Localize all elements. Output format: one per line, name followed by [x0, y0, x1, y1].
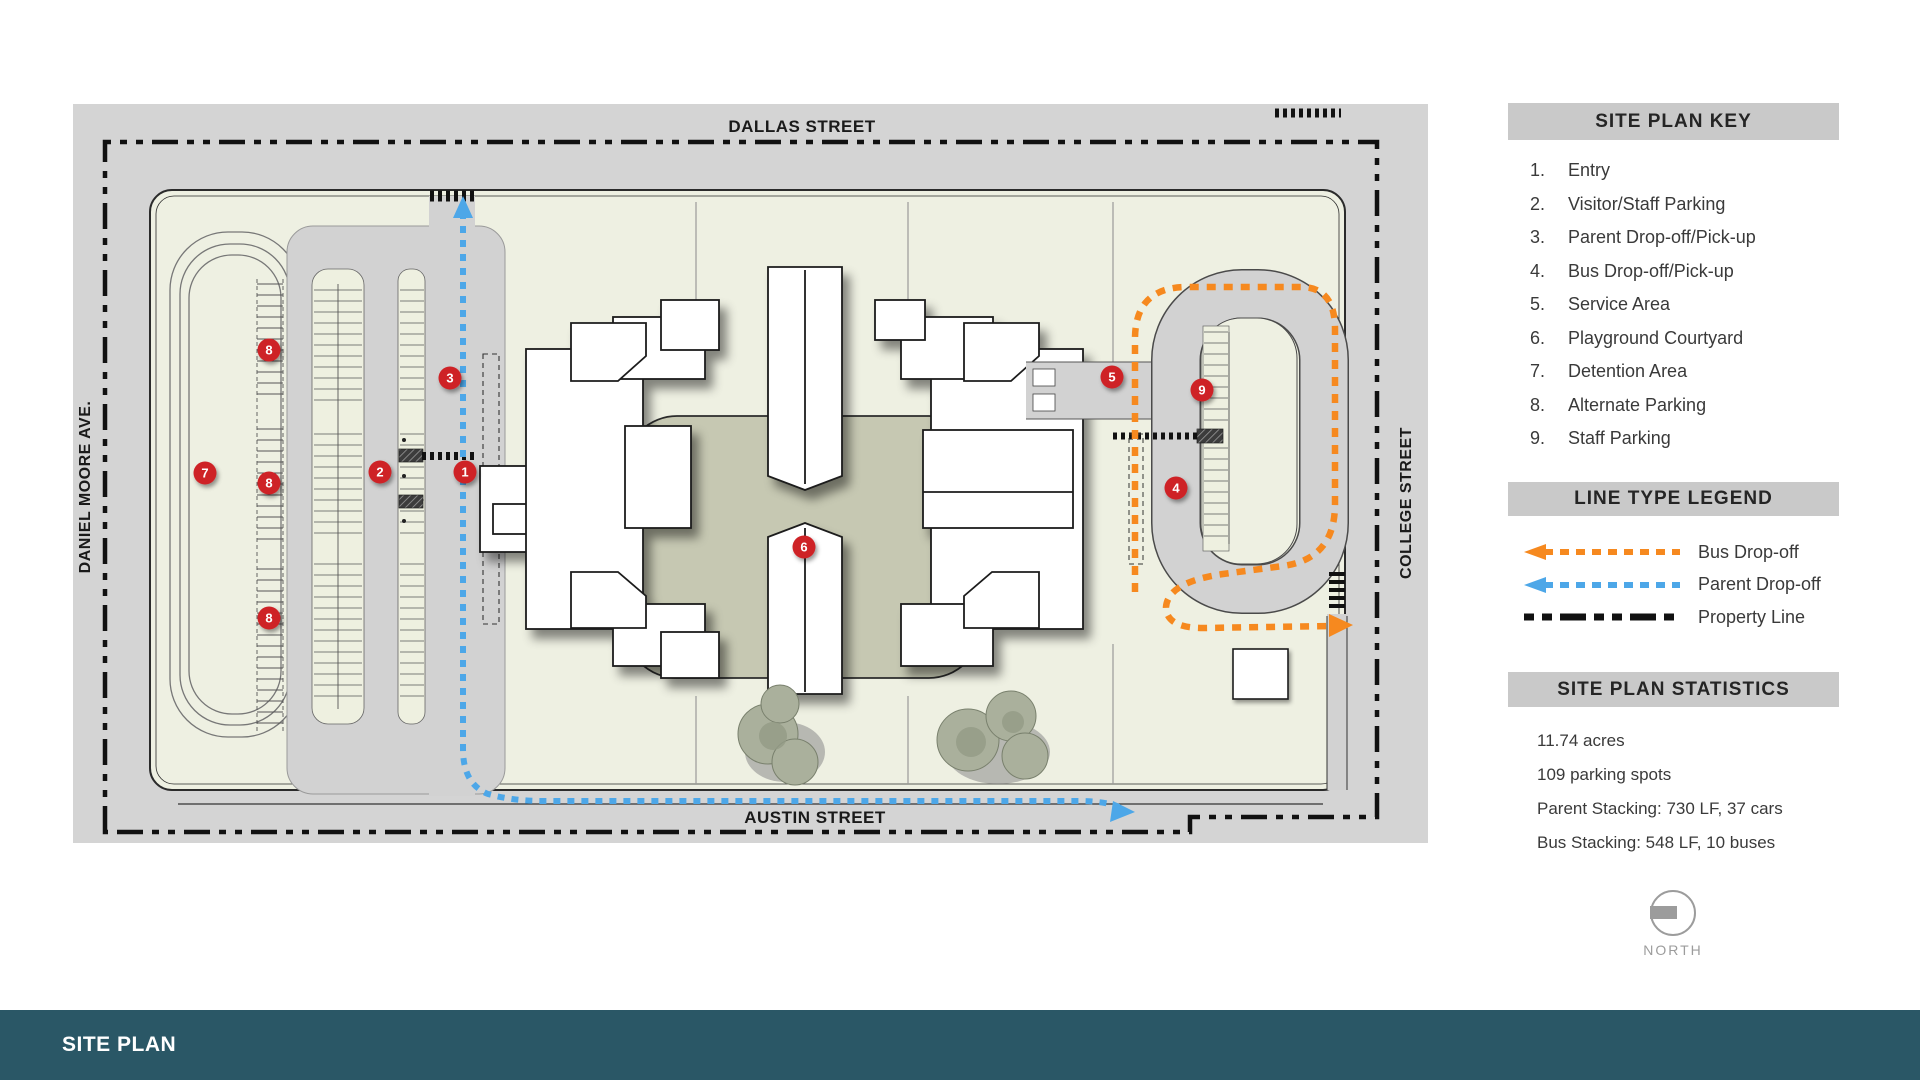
svg-text:1: 1 — [461, 465, 468, 480]
key-item-bus-dropoff: 4.Bus Drop-off/Pick-up — [1508, 255, 1839, 289]
svg-text:2: 2 — [376, 465, 383, 480]
svg-text:9: 9 — [1198, 383, 1205, 398]
svg-text:5: 5 — [1108, 370, 1115, 385]
svg-text:7: 7 — [201, 466, 208, 481]
key-item-parent-dropoff: 3.Parent Drop-off/Pick-up — [1508, 221, 1839, 255]
stat-parking-spots: 109 parking spots — [1537, 758, 1877, 792]
ada-stall — [1197, 429, 1223, 443]
site-plan-key-list: 1.Entry 2.Visitor/Staff Parking 3.Parent… — [1508, 154, 1839, 456]
entry-drive — [429, 196, 475, 796]
page: { "map": { "streets": { "top": "DALLAS S… — [0, 0, 1920, 1080]
line-type-legend: Bus Drop-off Parent Drop-off Property Li… — [1508, 536, 1868, 634]
key-item-visitor-parking: 2.Visitor/Staff Parking — [1508, 188, 1839, 222]
svg-text:4: 4 — [1172, 481, 1180, 496]
north-label: NORTH — [1623, 942, 1723, 958]
site-plan-drawing: DALLAS STREET AUSTIN STREET DANIEL MOORE… — [73, 104, 1428, 843]
ada-stall — [399, 495, 423, 508]
key-item-detention: 7.Detention Area — [1508, 355, 1839, 389]
exit-drive — [1327, 614, 1347, 790]
ada-stall — [399, 449, 423, 462]
parent-route-line-sample — [1522, 577, 1684, 593]
key-item-staff-parking: 9.Staff Parking — [1508, 422, 1839, 456]
stat-parent-stacking: Parent Stacking: 730 LF, 37 cars — [1537, 792, 1877, 826]
legend-row-property: Property Line — [1508, 601, 1868, 634]
street-label-dallas: DALLAS STREET — [728, 117, 875, 136]
svg-text:8: 8 — [265, 611, 272, 626]
service-dock — [1033, 369, 1055, 386]
key-item-entry: 1.Entry — [1508, 154, 1839, 188]
key-item-service-area: 5.Service Area — [1508, 288, 1839, 322]
footer-bar: SITE PLAN — [0, 1010, 1920, 1080]
outbuilding — [1233, 649, 1288, 699]
street-label-austin: AUSTIN STREET — [744, 808, 886, 827]
legend-header: LINE TYPE LEGEND — [1508, 482, 1839, 516]
legend-row-parent: Parent Drop-off — [1508, 569, 1868, 602]
north-compass-needle — [1650, 906, 1677, 919]
svg-text:8: 8 — [265, 343, 272, 358]
bus-route-line-sample — [1522, 544, 1684, 560]
stat-bus-stacking: Bus Stacking: 548 LF, 10 buses — [1537, 826, 1877, 860]
key-item-playground: 6.Playground Courtyard — [1508, 322, 1839, 356]
statistics-header: SITE PLAN STATISTICS — [1508, 672, 1839, 707]
site-plan-map: DALLAS STREET AUSTIN STREET DANIEL MOORE… — [73, 104, 1428, 843]
svg-text:3: 3 — [446, 371, 453, 386]
svg-text:6: 6 — [800, 540, 807, 555]
legend-row-bus: Bus Drop-off — [1508, 536, 1868, 569]
property-line-sample — [1522, 609, 1684, 625]
svg-text:8: 8 — [265, 476, 272, 491]
page-title: SITE PLAN — [0, 1010, 1920, 1080]
street-label-daniel-moore: DANIEL MOORE AVE. — [77, 401, 94, 574]
service-dock — [1033, 394, 1055, 411]
street-label-college: COLLEGE STREET — [1398, 427, 1415, 579]
stat-acreage: 11.74 acres — [1537, 724, 1877, 758]
site-plan-statistics: 11.74 acres 109 parking spots Parent Sta… — [1537, 724, 1877, 860]
key-item-alternate-parking: 8.Alternate Parking — [1508, 389, 1839, 423]
key-header: SITE PLAN KEY — [1508, 103, 1839, 140]
